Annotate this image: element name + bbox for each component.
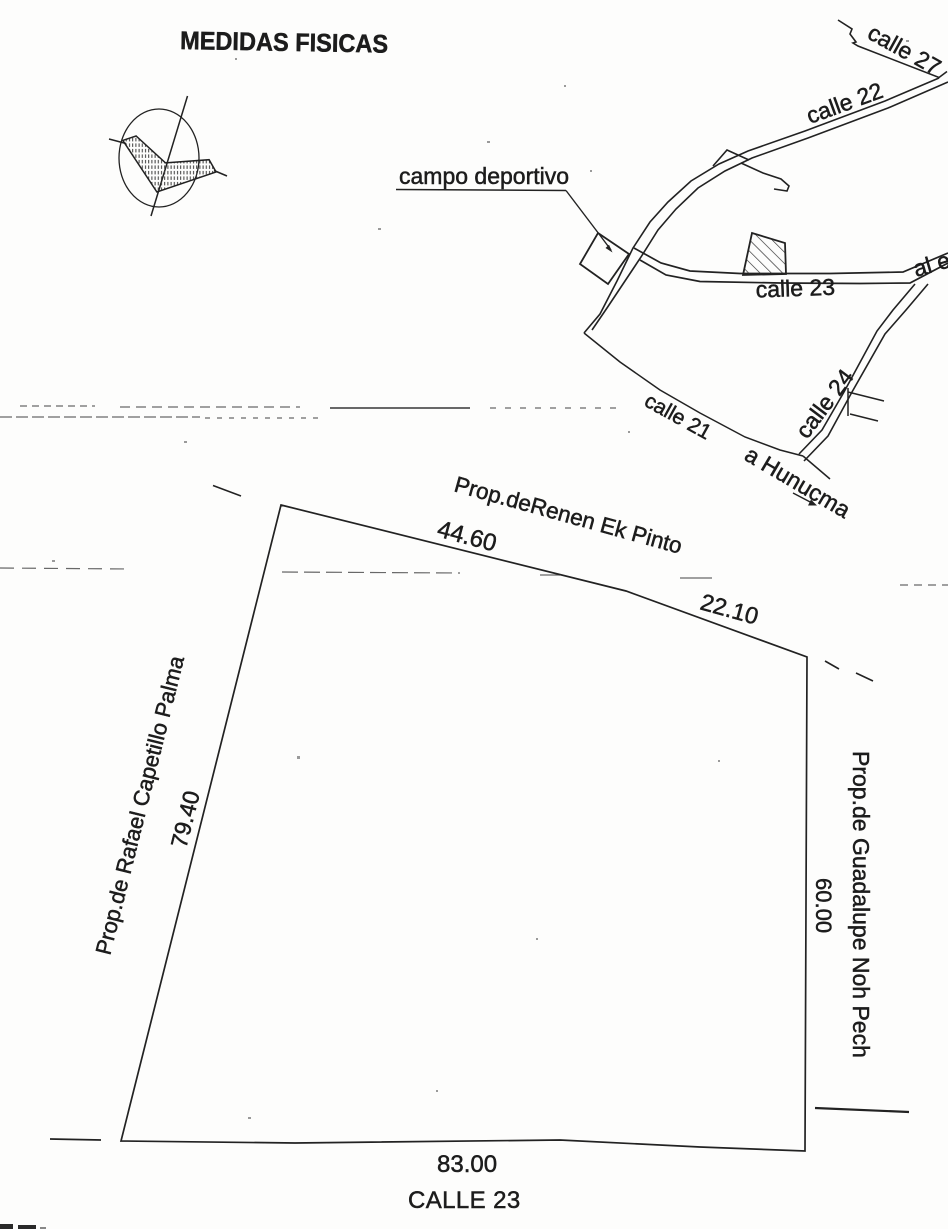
svg-text:calle 21: calle 21 — [641, 389, 715, 444]
svg-text:Prop.de Guadalupe Noh Pech: Prop.de Guadalupe Noh Pech — [848, 751, 874, 1058]
svg-text:a Hunucma: a Hunucma — [740, 441, 855, 523]
svg-text:calle 22: calle 22 — [803, 77, 886, 129]
svg-text:MEDIDAS FISICAS: MEDIDAS FISICAS — [180, 27, 388, 59]
svg-text:79.40: 79.40 — [166, 788, 205, 850]
svg-text:calle 27: calle 27 — [864, 19, 946, 80]
svg-text:CALLE 23: CALLE 23 — [408, 1187, 521, 1214]
svg-text:al e: al e — [910, 247, 948, 282]
svg-text:calle 23: calle 23 — [755, 274, 835, 303]
svg-text:60.00: 60.00 — [811, 878, 836, 933]
svg-text:campo deportivo: campo deportivo — [399, 163, 569, 189]
svg-text:83.00: 83.00 — [437, 1151, 497, 1178]
svg-text:22.10: 22.10 — [698, 589, 762, 630]
